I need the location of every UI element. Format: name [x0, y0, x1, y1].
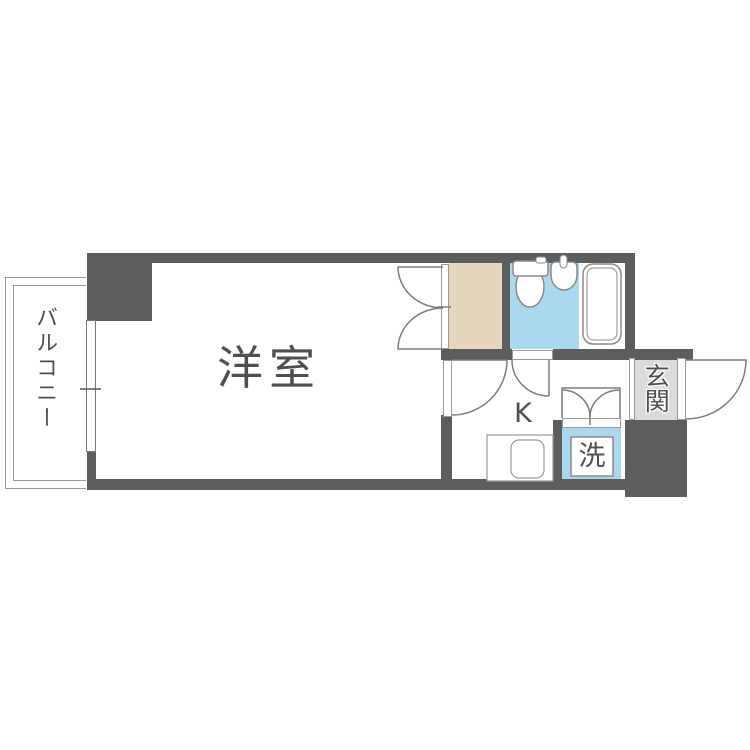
- bathtub-icon: [583, 264, 621, 344]
- bathroom-door: [512, 360, 549, 396]
- kitchen-label: K: [505, 400, 541, 428]
- fixtures-layer: [0, 0, 750, 750]
- room-door: [452, 360, 507, 415]
- balcony-label: バルコニー: [33, 306, 56, 431]
- floor-plan: バルコニー 洋室 K 玄関 洗: [0, 0, 750, 750]
- entrance-door: [686, 360, 746, 419]
- room-label: 洋室: [214, 344, 324, 392]
- laundry-double-door: [562, 388, 620, 425]
- closet-double-door: [398, 267, 451, 349]
- kitchen-sink: [487, 435, 553, 481]
- washbasin-icon: [551, 255, 577, 290]
- entrance-label: 玄関: [642, 363, 668, 413]
- laundry-label: 洗: [571, 443, 613, 471]
- toilet-icon: [513, 257, 548, 307]
